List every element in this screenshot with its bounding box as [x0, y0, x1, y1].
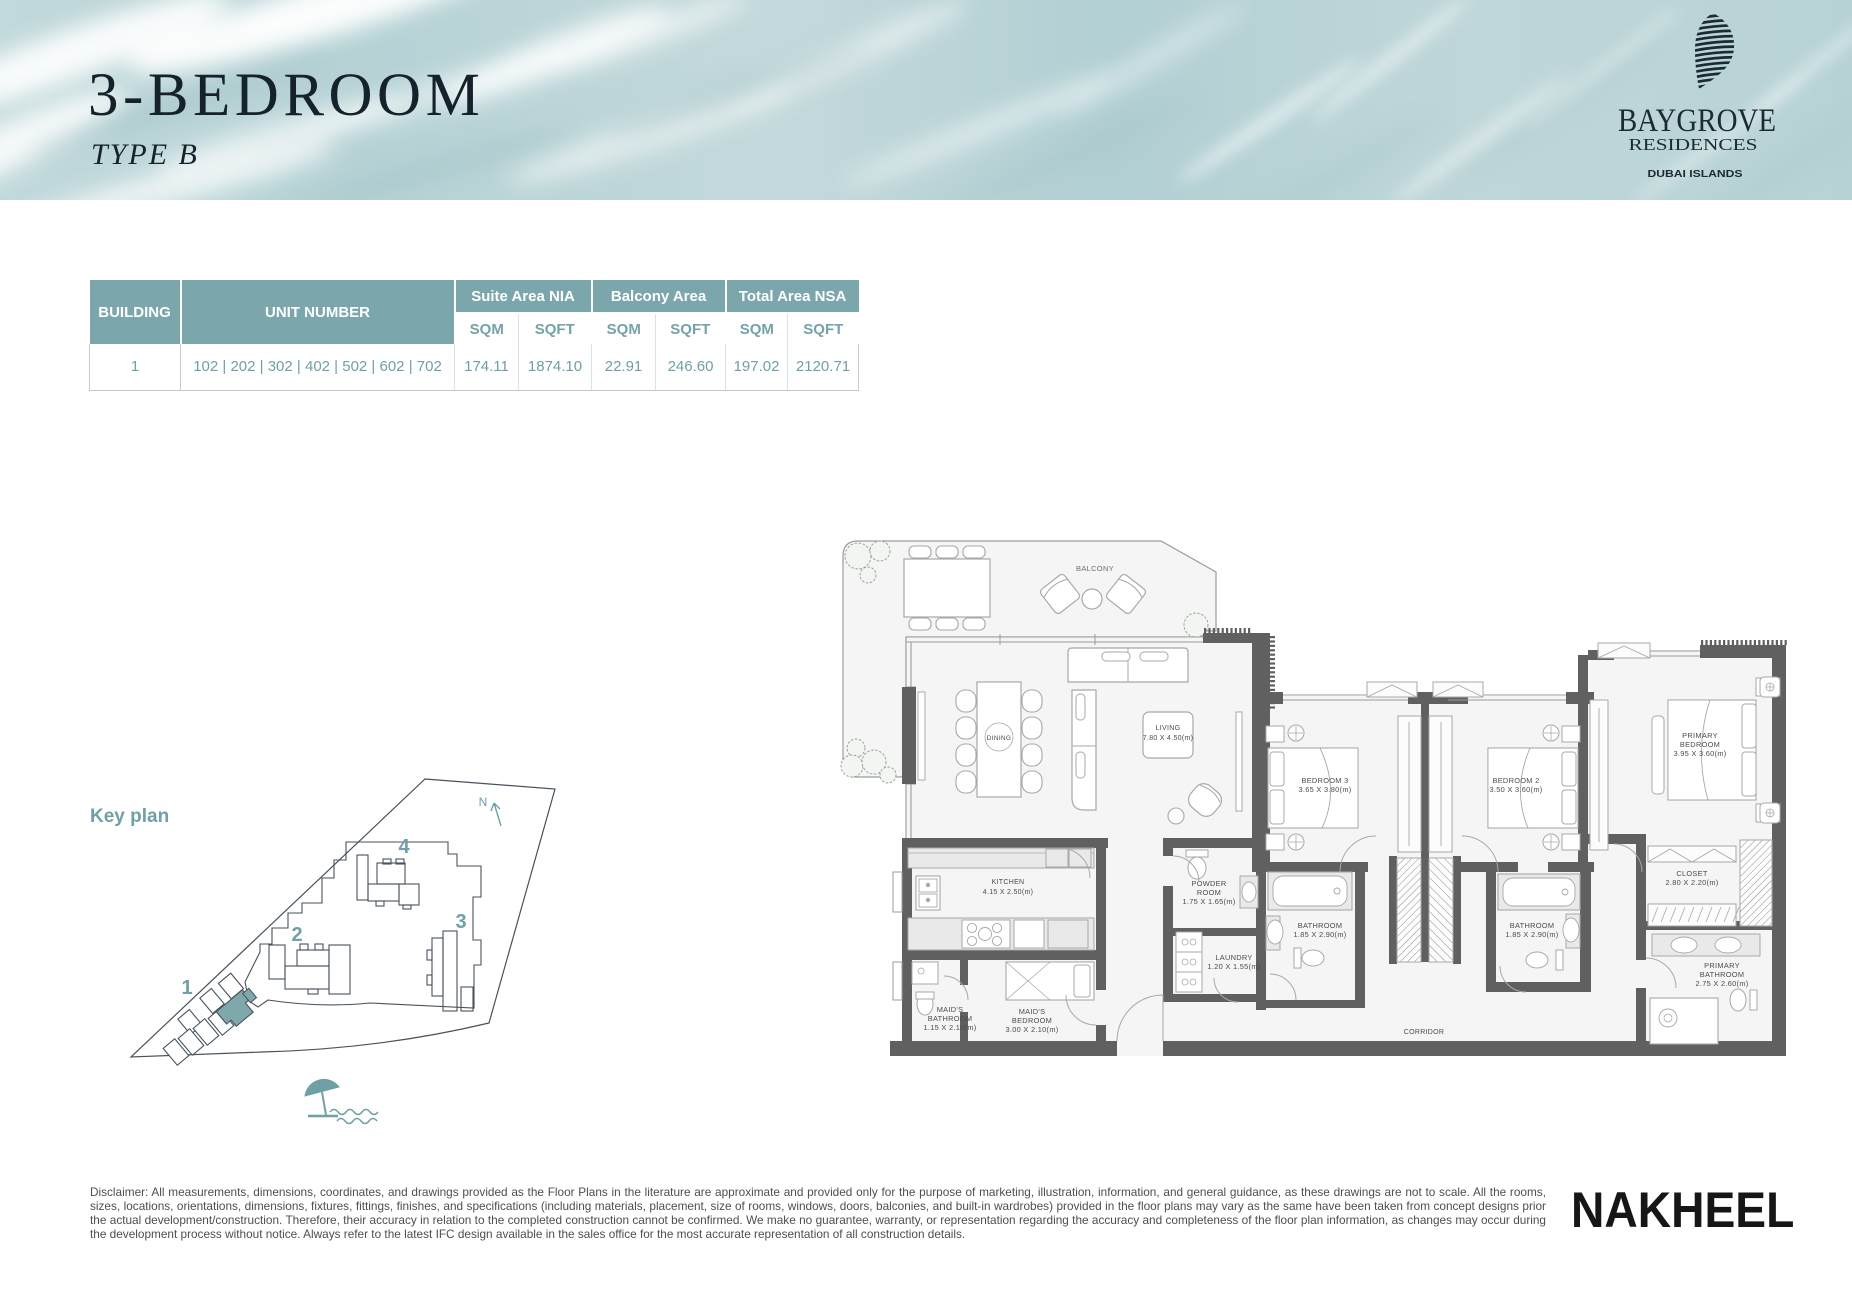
svg-text:LAUNDRY: LAUNDRY	[1215, 953, 1252, 962]
svg-text:CORRIDOR: CORRIDOR	[1404, 1029, 1445, 1036]
svg-text:N: N	[479, 795, 488, 809]
svg-text:3.95 X 3.60(m): 3.95 X 3.60(m)	[1673, 749, 1726, 758]
svg-text:BATHROOM: BATHROOM	[1298, 921, 1343, 930]
svg-text:4: 4	[398, 836, 410, 858]
svg-text:BEDROOM 2: BEDROOM 2	[1492, 776, 1539, 785]
svg-text:BATHROOM: BATHROOM	[1510, 921, 1555, 930]
svg-text:3.50 X 3.60(m): 3.50 X 3.60(m)	[1489, 785, 1542, 794]
svg-text:BALCONY: BALCONY	[1076, 564, 1114, 573]
svg-text:1.85 X 2.90(m): 1.85 X 2.90(m)	[1505, 930, 1558, 939]
svg-text:LIVING: LIVING	[1156, 725, 1181, 732]
svg-text:2.80 X 2.20(m): 2.80 X 2.20(m)	[1665, 878, 1718, 887]
svg-text:BEDROOM 3: BEDROOM 3	[1301, 776, 1348, 785]
svg-text:BATHROOM: BATHROOM	[1700, 970, 1745, 979]
svg-text:MAID'S: MAID'S	[937, 1005, 964, 1014]
svg-text:MAID'S: MAID'S	[1019, 1007, 1046, 1016]
svg-text:KITCHEN: KITCHEN	[992, 879, 1025, 886]
svg-text:BEDROOM: BEDROOM	[1012, 1016, 1052, 1025]
svg-text:BEDROOM: BEDROOM	[1680, 740, 1720, 749]
svg-text:RESIDENCES: RESIDENCES	[1629, 135, 1758, 154]
svg-text:1.20 X 1.55(m): 1.20 X 1.55(m)	[1207, 962, 1260, 971]
svg-text:1: 1	[181, 977, 192, 999]
svg-text:7.80 X 4.50(m): 7.80 X 4.50(m)	[1143, 735, 1194, 742]
svg-text:1.75 X 1.65(m): 1.75 X 1.65(m)	[1182, 897, 1235, 906]
svg-text:PRIMARY: PRIMARY	[1704, 961, 1740, 970]
svg-text:CLOSET: CLOSET	[1676, 869, 1708, 878]
svg-text:1.85 X 2.90(m): 1.85 X 2.90(m)	[1293, 930, 1346, 939]
svg-text:BATHROOM: BATHROOM	[928, 1014, 973, 1023]
svg-text:DINING: DINING	[987, 735, 1012, 742]
svg-text:POWDER: POWDER	[1191, 879, 1226, 888]
svg-text:1.15 X 2.10(m): 1.15 X 2.10(m)	[923, 1023, 976, 1032]
svg-text:2: 2	[291, 924, 302, 946]
svg-text:2.75 X 2.60(m): 2.75 X 2.60(m)	[1695, 979, 1748, 988]
svg-text:3.65 X 3.80(m): 3.65 X 3.80(m)	[1298, 785, 1351, 794]
svg-text:DUBAI ISLANDS: DUBAI ISLANDS	[1648, 168, 1743, 180]
svg-text:PRIMARY: PRIMARY	[1682, 731, 1718, 740]
svg-text:3: 3	[455, 911, 466, 933]
svg-text:ROOM: ROOM	[1197, 888, 1221, 897]
svg-text:3.00 X 2.10(m): 3.00 X 2.10(m)	[1005, 1025, 1058, 1034]
svg-text:4.15 X 2.50(m): 4.15 X 2.50(m)	[983, 889, 1034, 896]
svg-text:BAYGROVE: BAYGROVE	[1618, 103, 1776, 139]
